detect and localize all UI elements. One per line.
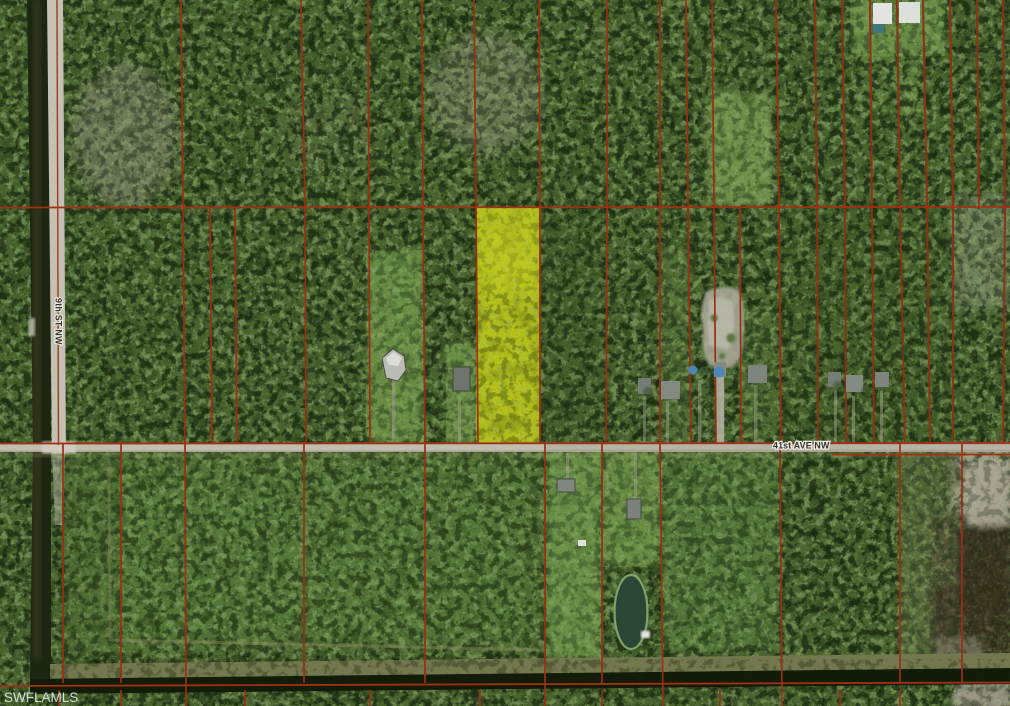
svg-text:SWFLAMLS: SWFLAMLS: [4, 690, 78, 705]
svg-text:41st AVE NW: 41st AVE NW: [773, 441, 830, 451]
svg-text:9th ST NW: 9th ST NW: [54, 298, 64, 345]
